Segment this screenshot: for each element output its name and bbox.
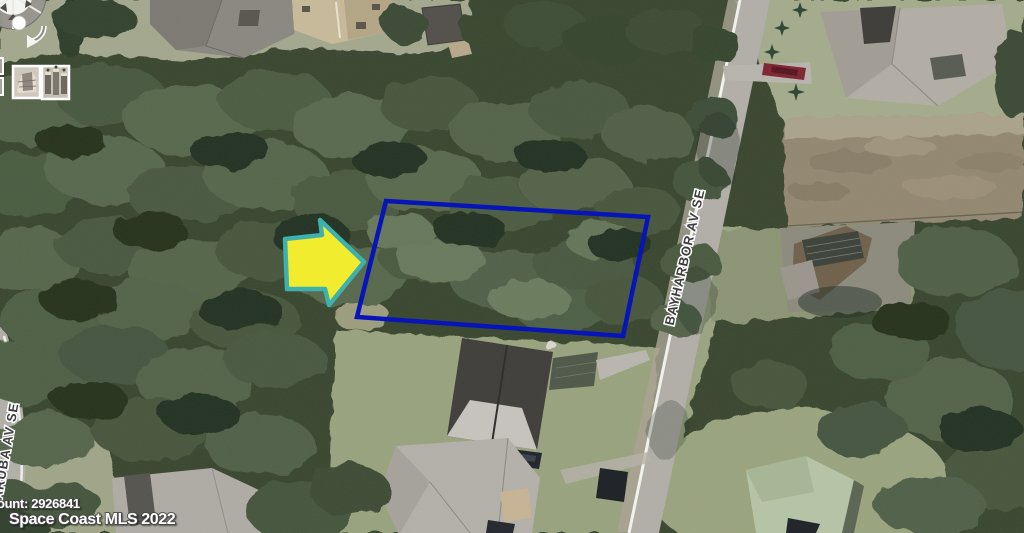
aerial-view-thumbnail-button[interactable] — [13, 66, 40, 98]
mls-attribution-text: Space Coast MLS 2022 — [9, 511, 176, 528]
building-icon — [45, 74, 51, 94]
map-canvas[interactable]: BAYHARBOR AV SE ARUBA AV SE — [0, 0, 1024, 533]
mls-aerial-map-screenshot: BAYHARBOR AV SE ARUBA AV SE — [0, 0, 1024, 533]
listing-count-text: ount: 2926841 — [0, 496, 80, 511]
photo-grain — [0, 0, 1024, 533]
birdseye-view-thumbnail-button[interactable] — [42, 66, 69, 100]
